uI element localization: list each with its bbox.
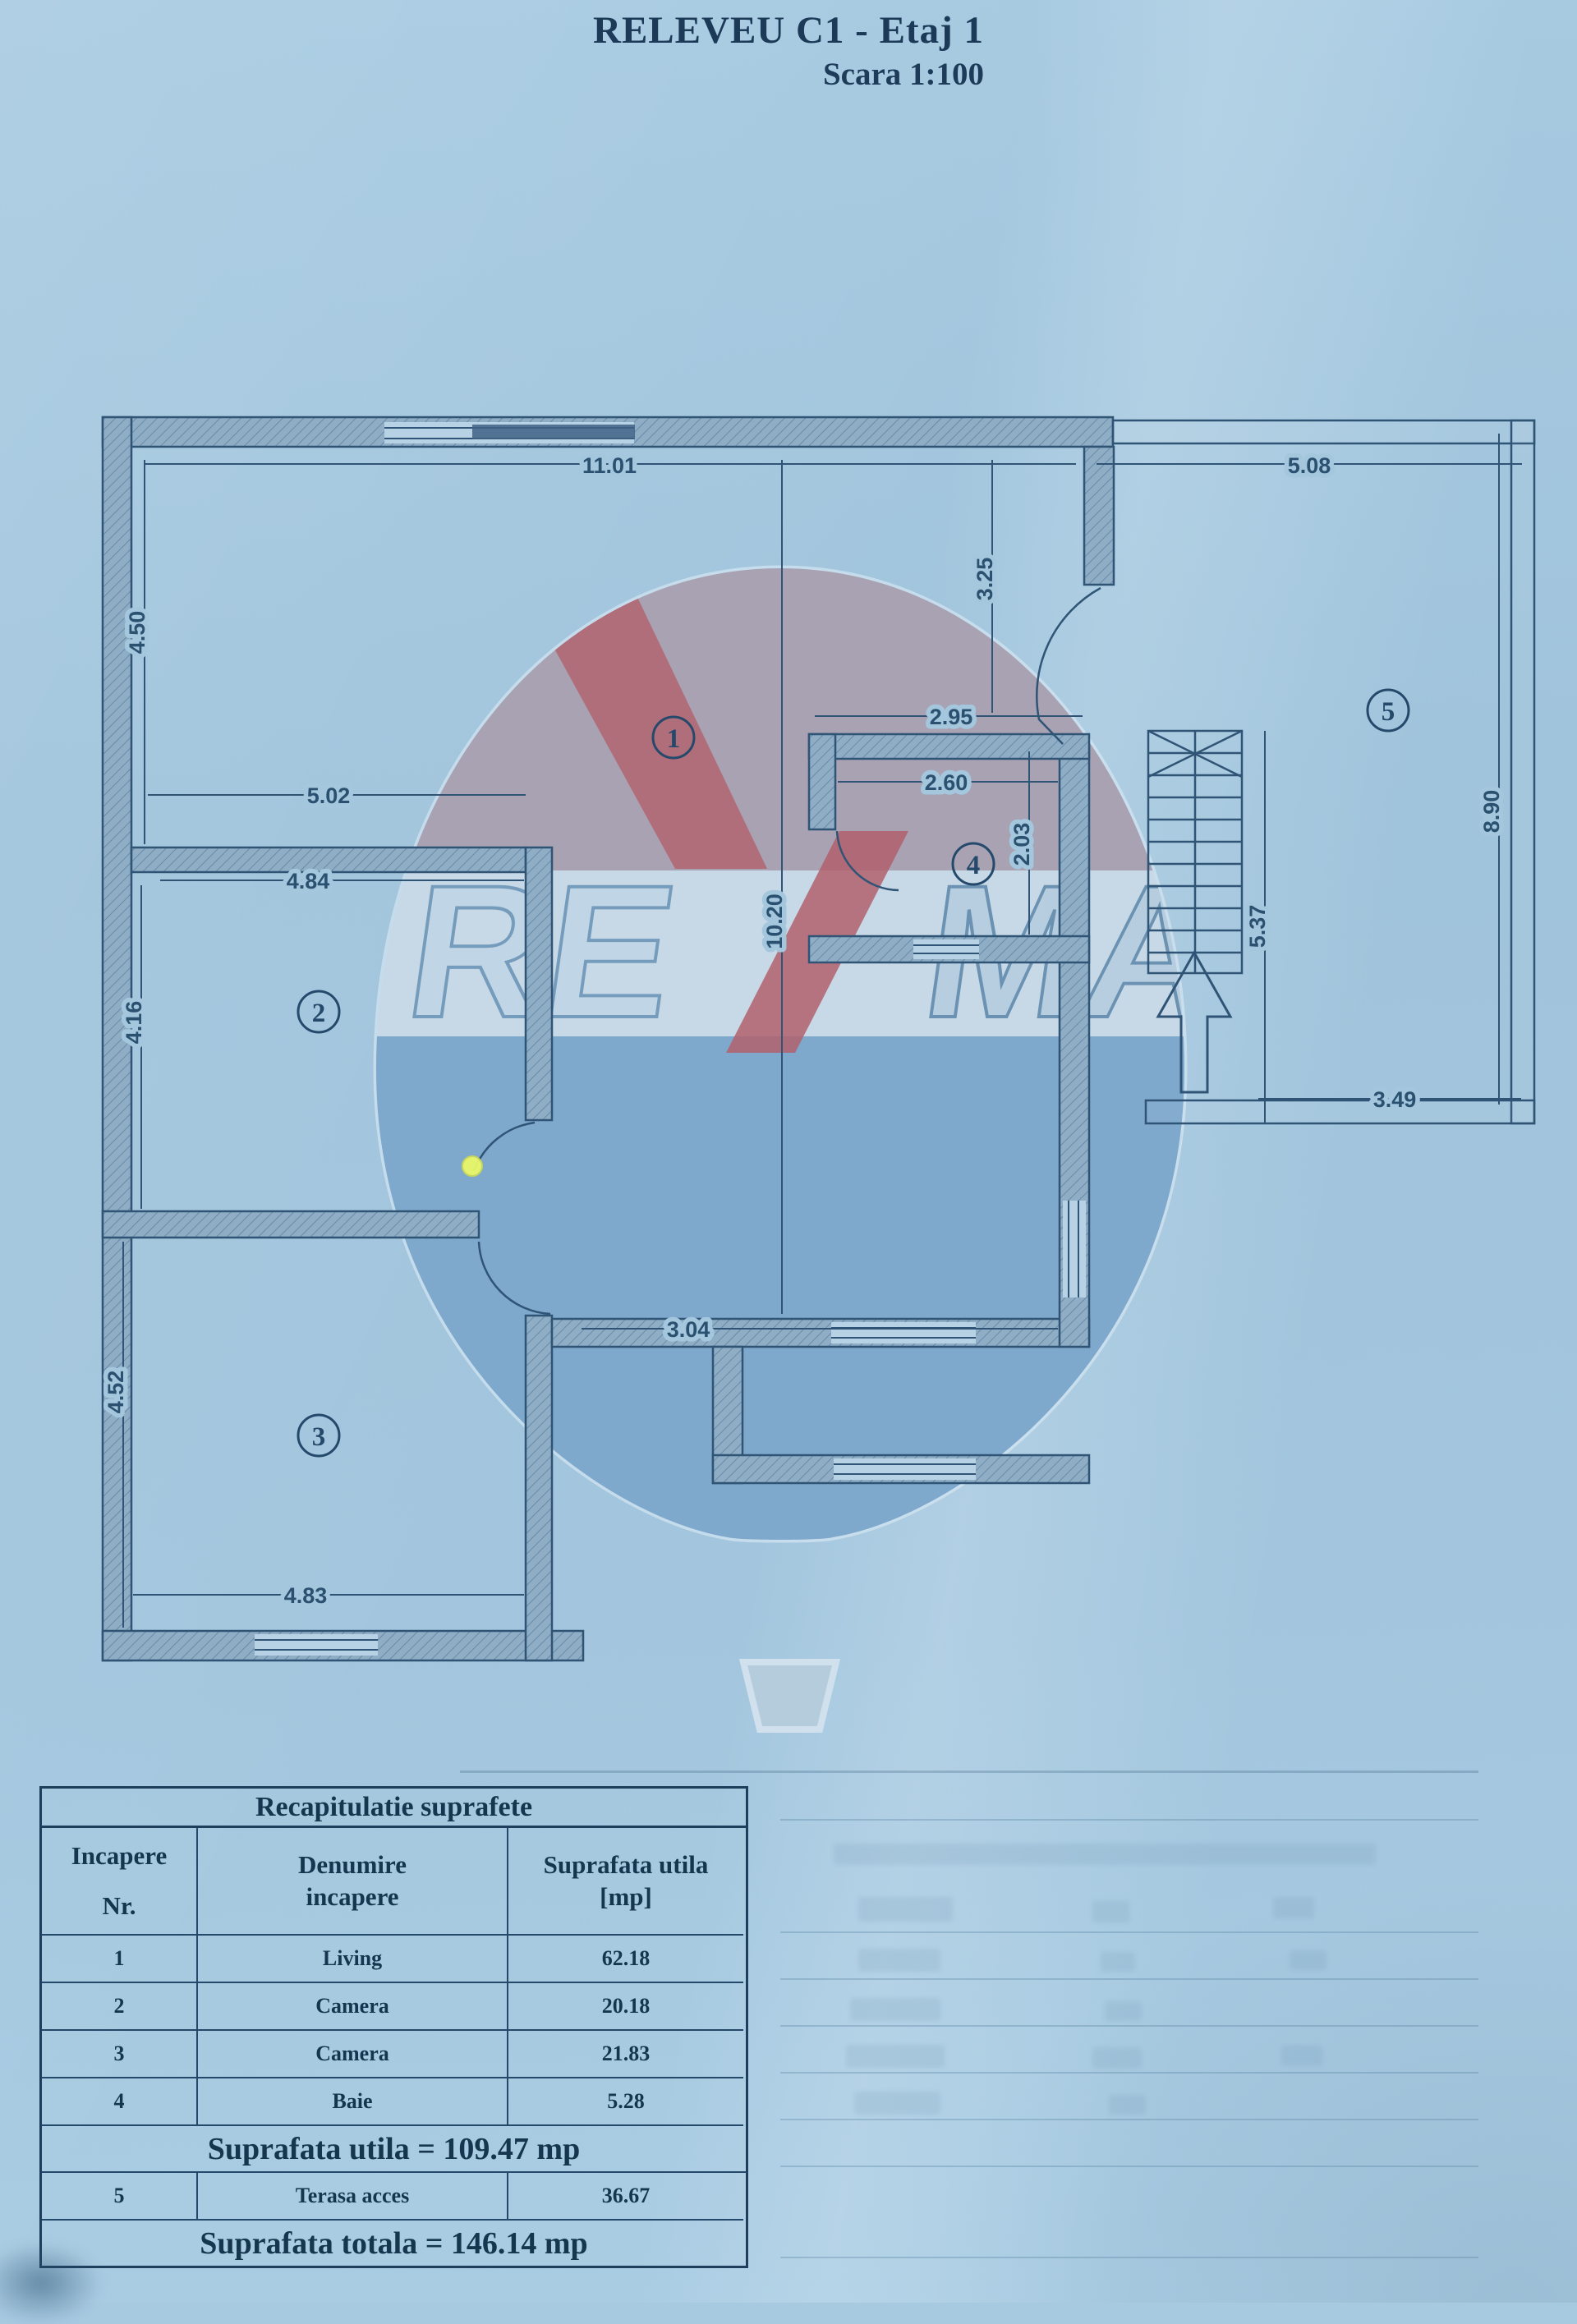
dim-label: 2.03 bbox=[1009, 823, 1034, 866]
room-label-2: 2 bbox=[312, 999, 326, 1028]
room-label-3: 3 bbox=[312, 1422, 326, 1452]
cell-area: 5.28 bbox=[508, 2078, 743, 2126]
wall-room4-top bbox=[809, 734, 1089, 759]
table-row: 2 Camera 20.18 bbox=[42, 1983, 746, 2031]
cell-area: 62.18 bbox=[508, 1936, 743, 1983]
cell-name: Baie bbox=[198, 2078, 508, 2126]
dim-label: 4.16 bbox=[122, 1001, 146, 1045]
window-room3-bottom bbox=[255, 1634, 378, 1656]
cell-nr: 4 bbox=[42, 2078, 198, 2126]
surfaces-table: Recapitulatie suprafete Incapere Nr. Den… bbox=[39, 1786, 748, 2268]
table-title: Recapitulatie suprafete bbox=[42, 1789, 746, 1828]
table-row: 5 Terasa acces 36.67 bbox=[42, 2173, 746, 2221]
header-incapere-line2: Nr. bbox=[102, 1890, 136, 1922]
header-denumire-line2: incapere bbox=[306, 1881, 398, 1913]
cell-name: Terasa acces bbox=[198, 2173, 508, 2221]
wall-rooms-right-lower bbox=[526, 1316, 552, 1660]
dim-label: 5.08 bbox=[1288, 453, 1331, 478]
table-row: 3 Camera 21.83 bbox=[42, 2031, 746, 2078]
window-right-wall bbox=[1063, 1201, 1086, 1297]
cell-nr: 3 bbox=[42, 2031, 198, 2078]
header-denumire-line1: Denumire bbox=[298, 1849, 407, 1881]
cell-name: Camera bbox=[198, 1983, 508, 2031]
dim-label: 5.02 bbox=[307, 783, 351, 808]
header-denumire: Denumire incapere bbox=[198, 1828, 508, 1936]
room-label-4: 4 bbox=[967, 851, 981, 880]
cell-area: 20.18 bbox=[508, 1983, 743, 2031]
total-row: Suprafata totala = 146.14 mp bbox=[42, 2221, 746, 2266]
floor-plan-svg: RE MAX bbox=[0, 0, 1577, 1774]
wall-hall-bottom bbox=[552, 1319, 1089, 1347]
room-label-5: 5 bbox=[1382, 697, 1395, 727]
cell-nr: 5 bbox=[42, 2173, 198, 2221]
parapet-top bbox=[1113, 420, 1534, 443]
table-header-row: Incapere Nr. Denumire incapere Suprafata… bbox=[42, 1828, 746, 1936]
dim-label: 11.01 bbox=[582, 453, 637, 478]
header-suprafata-line1: Suprafata utila bbox=[544, 1849, 709, 1881]
window-hall-bottom bbox=[831, 1322, 976, 1343]
wall-room4-left bbox=[809, 734, 835, 829]
wall-rooms-right-upper bbox=[526, 847, 552, 1120]
dim-label: 8.90 bbox=[1479, 790, 1504, 834]
ghost-table bbox=[780, 1819, 1478, 2279]
subtotal-row: Suprafata utila = 109.47 mp bbox=[42, 2126, 746, 2173]
window-top-wall-sash bbox=[472, 425, 635, 439]
balloon-basket bbox=[743, 1662, 836, 1729]
header-incapere-line1: Incapere bbox=[71, 1840, 168, 1872]
wall-terrace-door-stub bbox=[1084, 447, 1114, 585]
dim-label: 10.20 bbox=[762, 893, 787, 949]
parapet-right bbox=[1511, 420, 1534, 1123]
room-label-1: 1 bbox=[667, 724, 681, 754]
dim-label: 4.52 bbox=[103, 1371, 128, 1414]
header-incapere: Incapere Nr. bbox=[42, 1828, 198, 1936]
dim-label: 2.95 bbox=[930, 705, 973, 729]
dim-label: 5.37 bbox=[1245, 905, 1270, 948]
cell-name: Living bbox=[198, 1936, 508, 1983]
cell-nr: 1 bbox=[42, 1936, 198, 1983]
scan-artifact-line bbox=[460, 1771, 1478, 1773]
wall-room2-room3-divider bbox=[103, 1211, 479, 1238]
header-suprafata-line2: [mp] bbox=[600, 1881, 652, 1913]
cell-area: 21.83 bbox=[508, 2031, 743, 2078]
dim-label: 3.25 bbox=[972, 558, 997, 601]
window-vestibule-bottom bbox=[834, 1458, 976, 1480]
dim-label: 3.04 bbox=[667, 1317, 710, 1342]
cell-nr: 2 bbox=[42, 1983, 198, 2031]
cell-area: 36.67 bbox=[508, 2173, 743, 2221]
table-row: 4 Baie 5.28 bbox=[42, 2078, 746, 2126]
dim-label: 4.83 bbox=[284, 1583, 328, 1608]
dim-label: 4.84 bbox=[287, 869, 330, 893]
yellow-marker-dot bbox=[462, 1156, 482, 1176]
cell-name: Camera bbox=[198, 2031, 508, 2078]
header-suprafata: Suprafata utila [mp] bbox=[508, 1828, 743, 1936]
table-row: 1 Living 62.18 bbox=[42, 1936, 746, 1983]
dim-label: 3.49 bbox=[1373, 1087, 1417, 1112]
dim-label: 4.50 bbox=[125, 611, 149, 654]
window-room4-bottom bbox=[913, 939, 979, 959]
parapet-bottom bbox=[1146, 1100, 1534, 1123]
dim-label: 2.60 bbox=[925, 770, 968, 795]
